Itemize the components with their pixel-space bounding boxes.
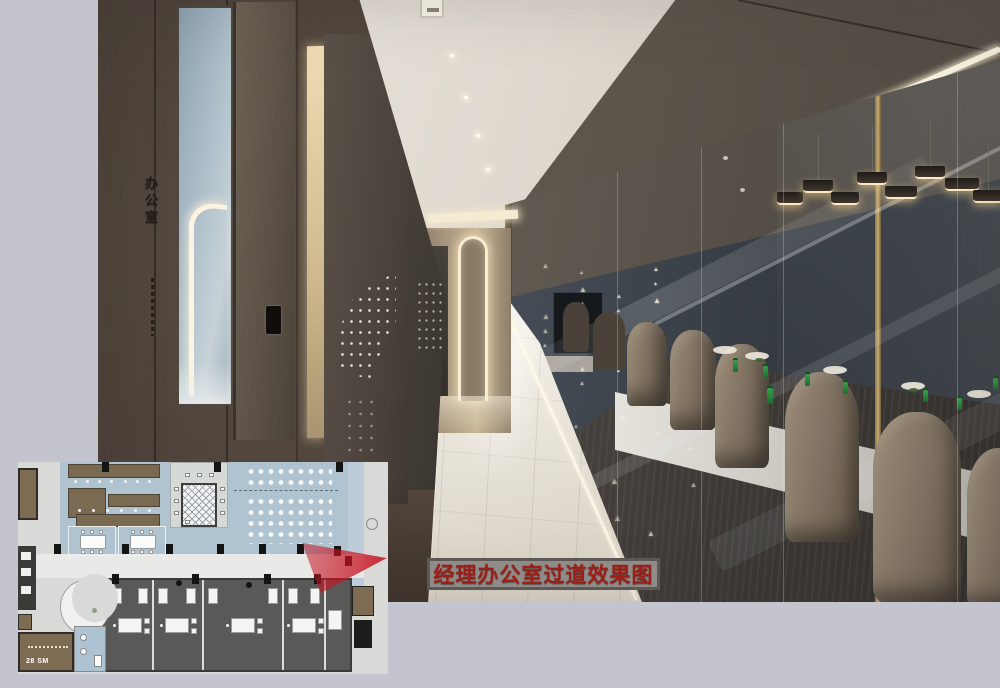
pendant-stem xyxy=(872,126,873,172)
plan-chair-dot xyxy=(134,509,137,512)
pendant-light xyxy=(973,190,1000,203)
triangle-decal: ▲ xyxy=(653,282,658,287)
plan-side-table xyxy=(257,628,263,634)
plan-door-marker xyxy=(217,544,224,554)
plan-chair-dot xyxy=(78,509,81,512)
plan-chair-dot xyxy=(160,624,163,627)
water-bottle xyxy=(767,388,773,404)
pendant-light xyxy=(857,172,887,185)
plan-door-marker xyxy=(102,462,109,472)
meeting-chair xyxy=(627,322,667,406)
triangle-decal: ▲ xyxy=(579,271,584,276)
glass-door-floor xyxy=(179,362,231,404)
ceiling-spotlight xyxy=(486,168,490,171)
plan-storage-room xyxy=(18,468,38,520)
plan-sofa xyxy=(208,588,218,604)
plan-chair-square xyxy=(185,473,190,477)
plan-meeting-room xyxy=(68,526,116,556)
plan-chair-dot xyxy=(92,509,95,512)
pendant-light xyxy=(803,180,833,193)
plan-chair-square xyxy=(220,487,225,491)
plan-office-wall xyxy=(202,580,204,670)
plan-sofa xyxy=(288,588,298,604)
plan-chair-square xyxy=(81,530,85,534)
plan-side-table xyxy=(144,628,150,634)
pendant-stem xyxy=(818,134,819,180)
water-bottle xyxy=(733,360,738,372)
plan-chair-dot xyxy=(124,480,127,483)
pendant-light xyxy=(831,192,859,205)
triangle-decal: ▲ xyxy=(653,429,661,437)
plan-chair-square xyxy=(149,530,153,534)
triangle-decal: ▲ xyxy=(687,445,694,452)
triangle-decal: ▲ xyxy=(542,343,548,349)
plan-office-wall xyxy=(324,580,326,670)
plan-chair-square xyxy=(90,530,94,534)
plan-chair-square xyxy=(140,550,144,554)
triangle-decal: ▲ xyxy=(619,413,628,422)
plan-chair-square xyxy=(140,530,144,534)
plan-workstations xyxy=(68,464,160,478)
triangle-decal: ▲ xyxy=(579,381,585,387)
illuminated-arch xyxy=(458,236,488,401)
water-bottle xyxy=(923,390,928,402)
plan-utility-room xyxy=(18,546,36,610)
triangle-decal: ▲ xyxy=(579,286,587,294)
plan-office-row xyxy=(102,578,352,672)
plan-chair-dot xyxy=(98,480,101,483)
plan-small-room xyxy=(18,614,32,630)
table-napkin xyxy=(713,346,737,354)
light-reflection-dot xyxy=(740,188,745,192)
pendant-stem xyxy=(930,120,931,166)
triangle-decal: ▲ xyxy=(690,482,697,489)
ceiling-spotlight xyxy=(450,54,454,57)
meeting-chair xyxy=(967,448,1000,602)
plan-hinge-dot xyxy=(176,580,182,586)
glass-door xyxy=(177,6,233,406)
plan-workstations xyxy=(108,494,160,507)
triangle-decal: ▲ xyxy=(647,530,655,538)
plan-training-room xyxy=(228,462,348,548)
table-greenery xyxy=(755,358,764,362)
plan-column-circle xyxy=(366,518,378,530)
water-bottle xyxy=(763,366,768,378)
meeting-chair xyxy=(785,372,859,542)
perforated-light-pattern xyxy=(416,280,446,350)
meeting-chair-far xyxy=(563,302,589,352)
plan-chair-square xyxy=(220,499,225,503)
meeting-chair-far xyxy=(593,312,625,370)
table-napkin xyxy=(823,366,847,374)
pendant-stem xyxy=(988,144,989,190)
plan-side-table xyxy=(318,628,324,634)
presentation-slide: ▲▲▲▲▲▲▲▲▲▲▲▲▲▲▲▲▲▲▲▲▲▲▲▲▲▲▲▲▲▲▲▲▲▲▲▲▲▲▲▲… xyxy=(0,0,1000,688)
plan-chair-square xyxy=(131,550,135,554)
plan-right-unit xyxy=(354,620,372,648)
plan-door-marker xyxy=(336,462,343,472)
plan-chair-square xyxy=(99,550,103,554)
plan-chair-dot xyxy=(148,509,151,512)
pendant-light xyxy=(915,166,945,179)
plan-room-28sm: 28 SM xyxy=(18,632,74,672)
plan-side-table xyxy=(191,618,197,624)
plan-chair-square xyxy=(81,550,85,554)
perforated-light-pattern xyxy=(338,272,396,380)
pendant-light xyxy=(777,192,803,205)
wall-seam xyxy=(296,0,298,540)
plan-door-marker xyxy=(122,544,129,554)
plan-sofa xyxy=(268,588,278,604)
pendant-light xyxy=(885,186,917,199)
plan-desk xyxy=(292,618,316,633)
plan-chair-square xyxy=(131,530,135,534)
table-greenery xyxy=(909,388,918,392)
plan-door-marker xyxy=(192,574,199,584)
plan-door-marker xyxy=(297,544,304,554)
plan-seat-grid xyxy=(246,496,332,544)
plan-stage-line xyxy=(234,490,338,491)
plan-room-label: 28 SM xyxy=(26,658,49,665)
glass-seam xyxy=(783,60,784,602)
plan-chair-square xyxy=(185,520,190,524)
plan-chair-dot xyxy=(113,624,116,627)
plan-chair-dot xyxy=(287,624,290,627)
plan-desk xyxy=(118,618,142,633)
plan-seat-grid xyxy=(246,466,332,488)
triangle-decal: ▲ xyxy=(653,297,661,305)
ceiling-fixture xyxy=(420,0,444,18)
plan-door-marker xyxy=(54,544,61,554)
plan-chair-square xyxy=(90,550,94,554)
plan-door-marker xyxy=(264,574,271,584)
plan-side-table xyxy=(257,618,263,624)
plan-chair-square xyxy=(99,530,103,534)
plan-door-marker xyxy=(214,462,221,472)
triangle-decal: ▲ xyxy=(653,267,659,273)
bronze-door xyxy=(233,2,295,440)
water-bottle xyxy=(805,374,810,386)
meeting-chair xyxy=(873,412,961,602)
plan-sofa xyxy=(186,588,196,604)
office-door-sign: 办公室 xyxy=(142,176,160,276)
plan-door-marker xyxy=(259,544,266,554)
plan-chair-square xyxy=(174,499,179,503)
triangle-decal: ▲ xyxy=(579,366,586,373)
plan-desk xyxy=(328,610,342,630)
plan-desk xyxy=(231,618,255,633)
meeting-chair xyxy=(715,344,769,468)
plan-dashed-marks xyxy=(28,646,68,648)
triangle-decal: ▲ xyxy=(542,313,550,321)
plan-sofa xyxy=(158,588,168,604)
plan-chair-dot xyxy=(106,509,109,512)
door-lock xyxy=(266,306,281,334)
plan-side-table xyxy=(318,618,324,624)
plan-chair-square xyxy=(174,511,179,515)
ceiling-spotlight xyxy=(476,134,480,137)
plan-plant xyxy=(92,608,97,613)
plan-side-table xyxy=(191,628,197,634)
triangle-decal: ▲ xyxy=(542,263,549,270)
plan-side-table xyxy=(144,618,150,624)
triangle-decal: ▲ xyxy=(542,328,549,335)
plan-chair-dot xyxy=(136,480,139,483)
plan-chair-dot xyxy=(110,480,113,483)
plan-chair-dot xyxy=(86,480,89,483)
plan-right-cabinet xyxy=(352,586,374,616)
plan-chair-dot xyxy=(120,509,123,512)
meeting-chair xyxy=(670,330,716,430)
table-napkin xyxy=(967,390,991,398)
plan-door-marker xyxy=(166,544,173,554)
plan-bathroom xyxy=(74,626,106,672)
plan-chair-dot xyxy=(148,480,151,483)
plan-chair-square xyxy=(174,487,179,491)
illuminated-wall-strip xyxy=(307,46,324,439)
plan-chair-dot xyxy=(226,624,229,627)
plan-office-wall xyxy=(282,580,284,670)
plan-sofa xyxy=(138,588,148,604)
plan-chair-square xyxy=(209,473,214,477)
plan-desk xyxy=(165,618,189,633)
perforated-light-pattern xyxy=(344,396,374,454)
glass-seam xyxy=(957,60,958,602)
plan-sofa xyxy=(310,588,320,604)
water-bottle xyxy=(993,378,998,390)
plan-hinge-dot xyxy=(246,582,252,588)
caption-plaque: 经理办公室过道效果图 xyxy=(427,558,660,590)
plan-chair-dot xyxy=(74,480,77,483)
triangle-decal: ▲ xyxy=(573,424,579,430)
door-sign-small-text xyxy=(151,278,154,336)
ceiling-spotlight xyxy=(464,96,468,99)
plan-door-marker xyxy=(112,574,119,584)
water-bottle xyxy=(843,382,848,394)
plan-chair-square xyxy=(220,511,225,515)
plan-chair-square xyxy=(197,473,202,477)
plan-chair-square xyxy=(149,550,153,554)
light-reflection-dot xyxy=(723,156,728,160)
plan-office-wall xyxy=(152,580,154,670)
